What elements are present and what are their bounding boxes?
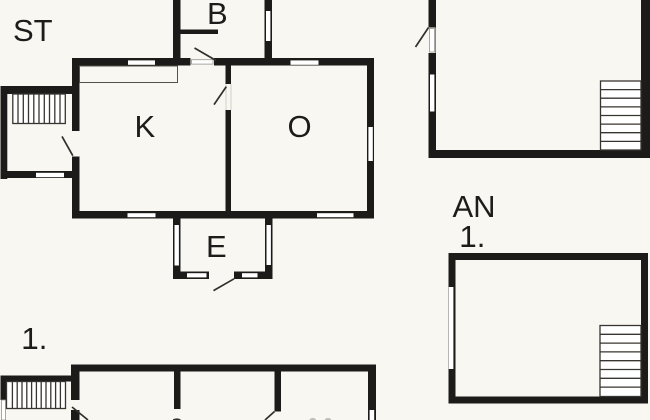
svg-text:B: B [207, 0, 228, 31]
svg-text:ST: ST [13, 13, 53, 48]
svg-text:E: E [206, 229, 227, 264]
svg-text:1.: 1. [22, 321, 48, 356]
svg-text:K: K [135, 109, 156, 144]
svg-text:1.: 1. [460, 219, 486, 254]
svg-text:O: O [288, 109, 312, 144]
